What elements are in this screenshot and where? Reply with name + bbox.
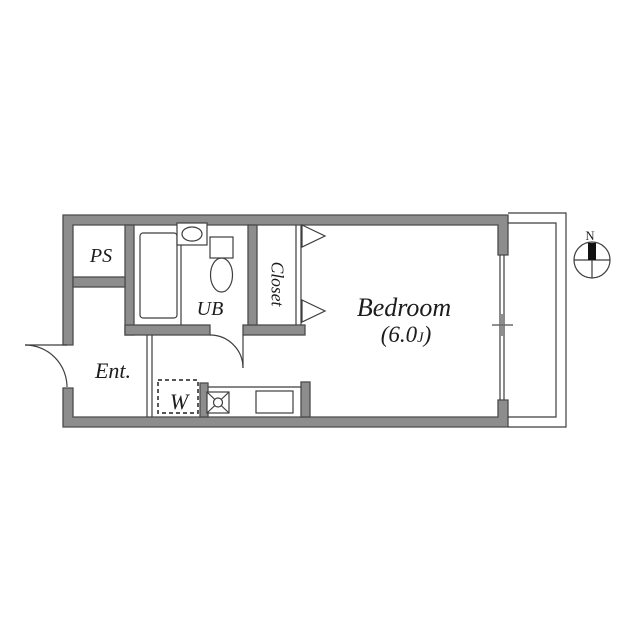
room-label-bedroom: Bedroom [357, 293, 451, 322]
entrance-step [147, 335, 152, 417]
floor-plan-page: PS UB Closet Ent. W Bedroom (6.0J) N [0, 0, 640, 640]
sliding-window [492, 255, 513, 400]
floor-plan: PS UB Closet Ent. W Bedroom (6.0J) N [0, 0, 640, 640]
wall-ps-bottom [73, 277, 125, 287]
north-needle [588, 243, 596, 260]
balcony-inner-edge [508, 223, 556, 417]
room-label-entrance: Ent. [94, 358, 131, 383]
room-label-ps: PS [89, 245, 112, 267]
toilet-bowl [211, 258, 233, 292]
entrance-door [25, 345, 67, 387]
closet-track [296, 225, 301, 325]
wall-closet-bottom [243, 325, 305, 335]
bathroom-door-swing [210, 335, 243, 368]
closet-door-symbol [302, 300, 325, 322]
bathroom-door [210, 335, 243, 368]
washer-label: W [170, 389, 190, 414]
room-label-ub: UB [197, 298, 224, 320]
bedroom-size-label: (6.0J) [381, 322, 432, 347]
compass-cross [574, 260, 610, 278]
balcony-outer-edge [508, 213, 566, 427]
bathtub [140, 233, 177, 318]
entrance-door-swing [25, 345, 67, 387]
north-label: N [585, 229, 594, 243]
room-label-closet: Closet [268, 262, 288, 308]
toilet-tank [210, 237, 233, 258]
stove-burner [214, 398, 223, 407]
balcony [508, 213, 566, 427]
closet-front [296, 225, 325, 325]
window-sash-tick [492, 314, 513, 336]
wall-ub-bottom [125, 325, 210, 335]
kitchen-sink [256, 391, 293, 413]
wall-ps-right [125, 225, 134, 335]
compass-icon: N [574, 229, 610, 278]
wash-basin-bowl [182, 227, 202, 241]
wall-ub-closet [248, 225, 257, 325]
wall-kitchen-stub-right [301, 382, 310, 417]
closet-door-symbol [302, 225, 325, 247]
